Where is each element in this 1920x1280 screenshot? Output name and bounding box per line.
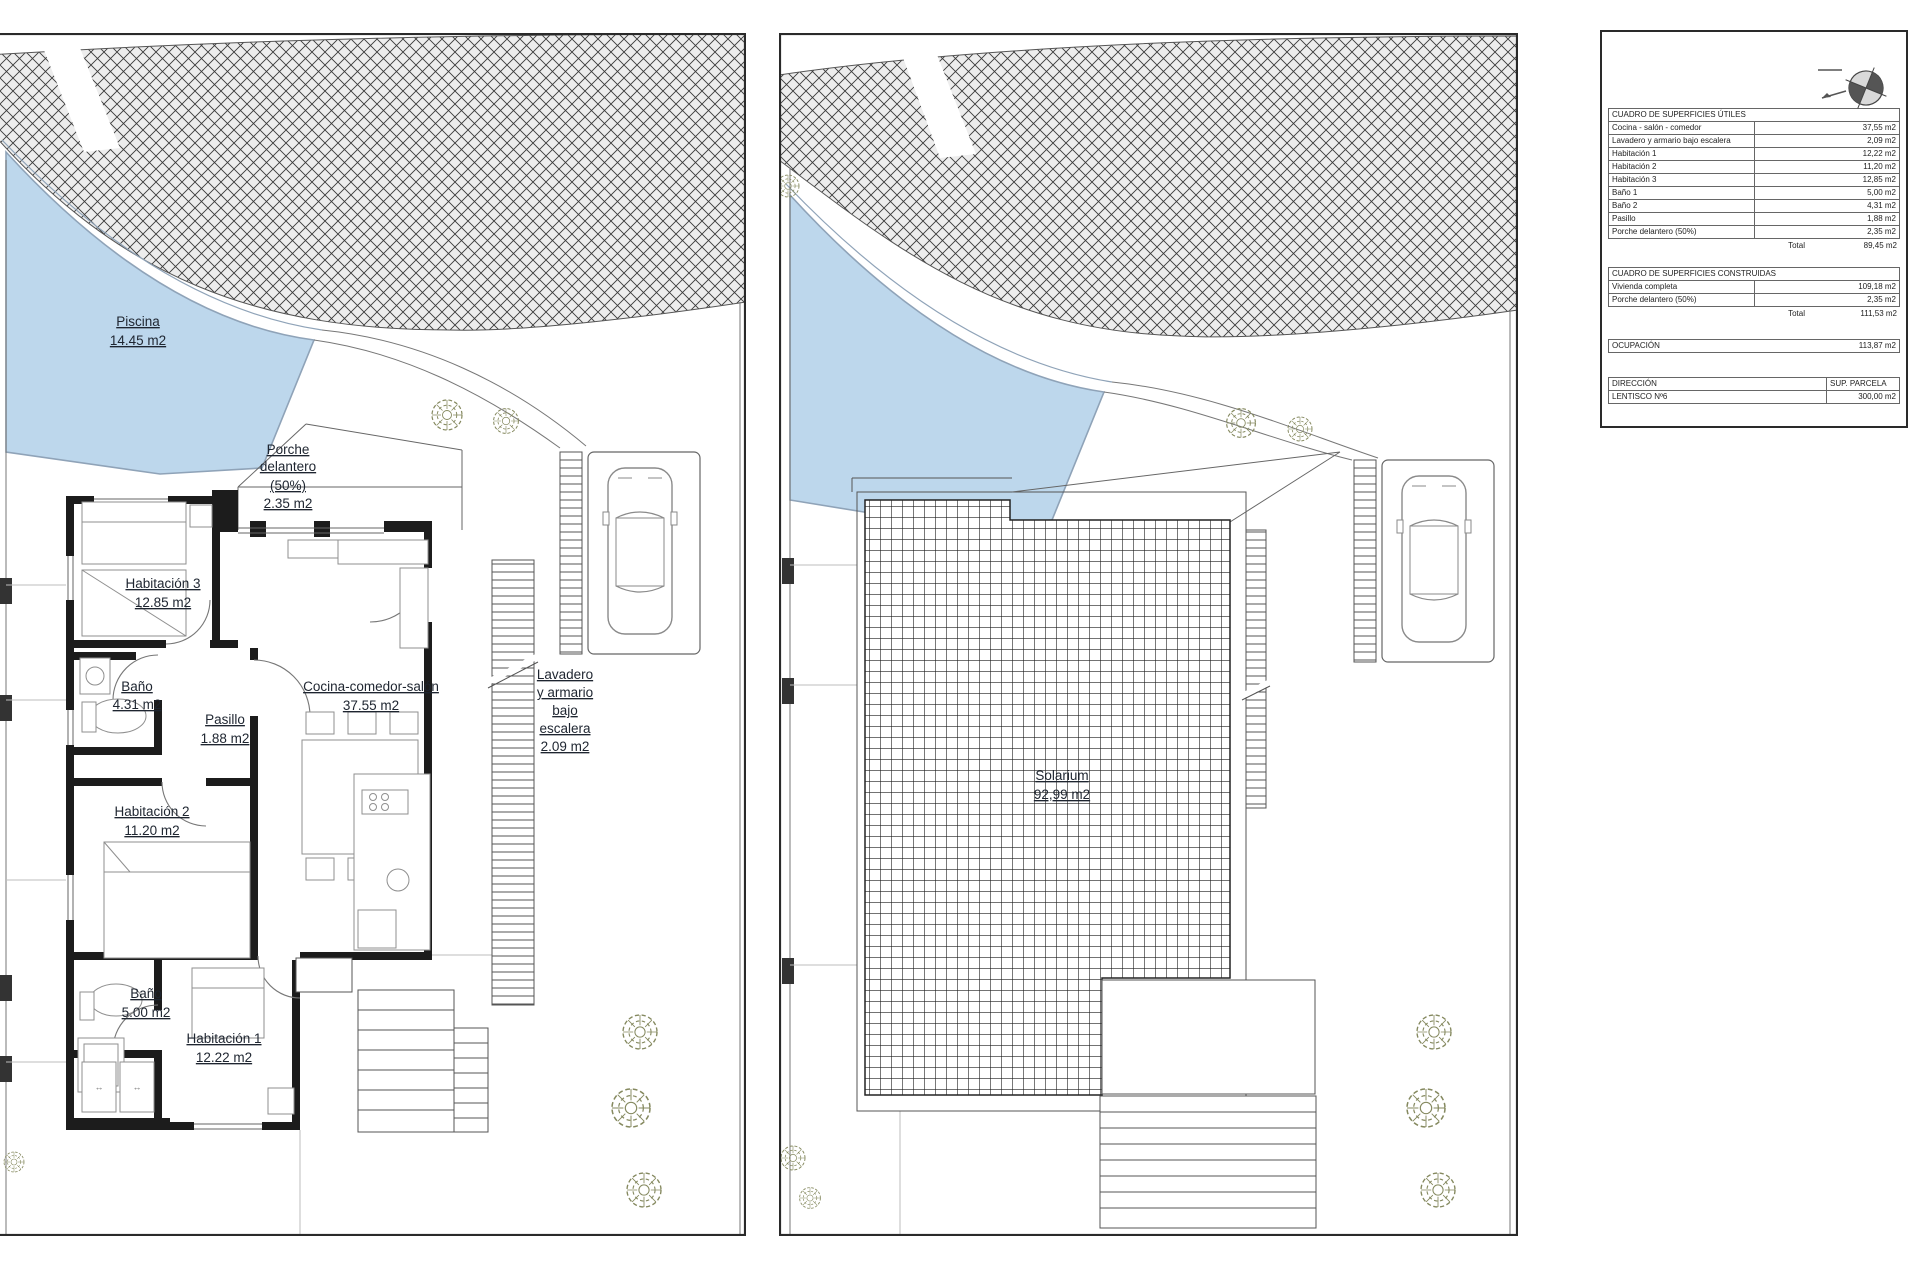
svg-text:92,99 m2: 92,99 m2 bbox=[1034, 787, 1090, 802]
table-row: Porche delantero (50%)2,35 m2 bbox=[1609, 226, 1900, 239]
svg-text:12.22 m2: 12.22 m2 bbox=[196, 1050, 252, 1065]
svg-text:4.31 m2: 4.31 m2 bbox=[113, 697, 162, 712]
svg-text:y armario: y armario bbox=[537, 685, 593, 700]
north-arrow-icon bbox=[1812, 46, 1896, 116]
sheet-ground-floor: ↔ ↔ Piscina 14.45 m2 Porche delantero (5… bbox=[0, 33, 746, 1236]
useful-surfaces-table: CUADRO DE SUPERFICIES ÚTILES Cocina - sa… bbox=[1608, 108, 1900, 239]
table-row: Porche delantero (50%)2,35 m2 bbox=[1609, 294, 1900, 307]
svg-text:(50%): (50%) bbox=[270, 478, 306, 493]
drawing-page: ↔ ↔ Piscina 14.45 m2 Porche delantero (5… bbox=[0, 0, 1920, 1280]
hall-label: Pasillo bbox=[205, 712, 245, 727]
laundry-label: Lavadero bbox=[537, 667, 593, 682]
svg-text:5.00 m2: 5.00 m2 bbox=[122, 1005, 171, 1020]
table-row: Pasillo1,88 m2 bbox=[1609, 213, 1900, 226]
svg-text:bajo: bajo bbox=[552, 703, 578, 718]
svg-text:12.85 m2: 12.85 m2 bbox=[135, 595, 191, 610]
svg-text:37.55 m2: 37.55 m2 bbox=[343, 698, 399, 713]
svg-text:1.88 m2: 1.88 m2 bbox=[201, 731, 250, 746]
table-row: Habitación 112,22 m2 bbox=[1609, 148, 1900, 161]
svg-text:escalera: escalera bbox=[539, 721, 591, 736]
bath1-label: Baño bbox=[130, 986, 162, 1001]
built-total-row: Total 111,53 m2 bbox=[1608, 309, 1900, 319]
table-row: Vivienda completa109,18 m2 bbox=[1609, 281, 1900, 294]
svg-text:delantero: delantero bbox=[260, 459, 316, 474]
surfaces-info-panel: CUADRO DE SUPERFICIES ÚTILES Cocina - sa… bbox=[1600, 30, 1908, 428]
table-row: Lavadero y armario bajo escalera2,09 m2 bbox=[1609, 135, 1900, 148]
table-title: CUADRO DE SUPERFICIES CONSTRUIDAS bbox=[1609, 268, 1900, 281]
table-row: Habitación 312,85 m2 bbox=[1609, 174, 1900, 187]
bedroom2-label: Habitación 2 bbox=[114, 804, 189, 819]
useful-total-row: Total 89,45 m2 bbox=[1608, 241, 1900, 251]
occupation-row: OCUPACIÓN 113,87 m2 bbox=[1608, 339, 1900, 353]
svg-text:11.20 m2: 11.20 m2 bbox=[124, 823, 179, 838]
roof-stairs bbox=[1100, 980, 1316, 1228]
bedroom3-label: Habitación 3 bbox=[125, 576, 200, 591]
table-row: Baño 15,00 m2 bbox=[1609, 187, 1900, 200]
bedroom1-label: Habitación 1 bbox=[186, 1031, 261, 1046]
stairs-strip bbox=[492, 560, 534, 1005]
porch-label: Porche bbox=[267, 442, 310, 457]
svg-text:2.09 m2: 2.09 m2 bbox=[541, 739, 590, 754]
svg-text:14.45 m2: 14.45 m2 bbox=[110, 333, 166, 348]
solarium-label: Solarium bbox=[1035, 768, 1088, 783]
table-row: LENTISCO Nº6300,00 m2 bbox=[1609, 391, 1900, 404]
table-row: Habitación 211,20 m2 bbox=[1609, 161, 1900, 174]
window-symbol: ↔ bbox=[133, 1082, 142, 1092]
svg-text:2.35 m2: 2.35 m2 bbox=[264, 496, 313, 511]
kitchen-label: Cocina-comedor-salón bbox=[303, 679, 439, 694]
pool-label: Piscina bbox=[116, 314, 160, 329]
address-table: DIRECCIÓNSUP. PARCELALENTISCO Nº6300,00 … bbox=[1608, 377, 1900, 404]
table-row: Cocina - salón - comedor37,55 m2 bbox=[1609, 122, 1900, 135]
sheet-roof-plan: Solarium 92,99 m2 bbox=[777, 33, 1518, 1236]
window-symbol: ↔ bbox=[95, 1082, 104, 1092]
bath2-label: Baño bbox=[121, 679, 153, 694]
table-row: DIRECCIÓNSUP. PARCELA bbox=[1609, 378, 1900, 391]
stairs-strip bbox=[1246, 530, 1266, 808]
table-row: Baño 24,31 m2 bbox=[1609, 200, 1900, 213]
built-surfaces-table: CUADRO DE SUPERFICIES CONSTRUIDAS Vivien… bbox=[1608, 267, 1900, 307]
